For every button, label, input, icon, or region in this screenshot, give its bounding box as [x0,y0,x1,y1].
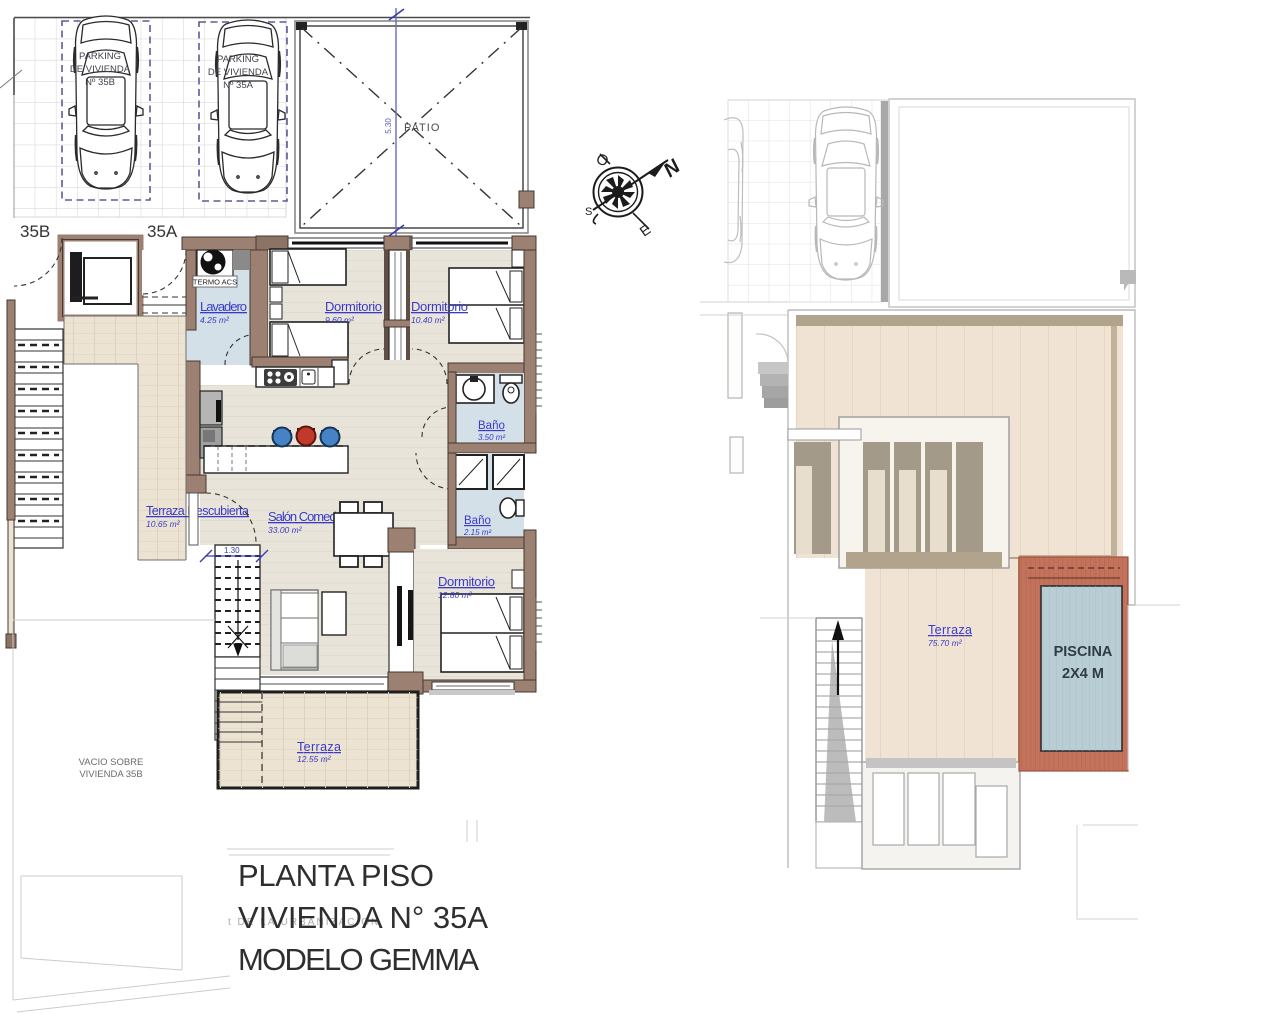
svg-text:Terraza: Terraza [928,623,972,637]
svg-text:DE VIVIENDA: DE VIVIENDA [70,64,131,75]
svg-text:Dormitorio: Dormitorio [438,574,495,589]
svg-text:S: S [585,206,592,218]
svg-text:PATIO: PATIO [404,122,440,134]
svg-text:TERMO ACS: TERMO ACS [193,278,237,287]
svg-text:35B: 35B [20,222,50,241]
svg-text:2.15 m²: 2.15 m² [463,528,491,537]
svg-text:10.40 m²: 10.40 m² [411,315,446,325]
svg-text:35A: 35A [147,222,178,241]
svg-text:PARKING: PARKING [79,51,121,62]
svg-text:DE VIVIENDA: DE VIVIENDA [208,67,269,78]
svg-text:10.65 m²: 10.65 m² [146,519,181,529]
svg-text:75.70 m²: 75.70 m² [928,638,963,648]
svg-text:2X4 M: 2X4 M [1062,666,1104,682]
svg-text:MODELO GEMMA: MODELO GEMMA [238,942,479,977]
svg-text:Baño: Baño [478,420,505,432]
svg-text:Lavadero: Lavadero [200,299,247,314]
svg-text:33.00 m²: 33.00 m² [268,525,303,535]
svg-text:PLANTA PISO: PLANTA PISO [238,858,434,893]
svg-text:12.55 m²: 12.55 m² [297,754,332,764]
svg-text:PISCINA: PISCINA [1054,644,1113,660]
svg-text:Dormitorio: Dormitorio [325,299,382,314]
svg-text:Baño: Baño [464,515,491,527]
svg-text:9.60 m²: 9.60 m² [325,315,355,325]
svg-text:12.80 m²: 12.80 m² [438,590,473,600]
svg-text:VACIO SOBRE: VACIO SOBRE [79,757,144,768]
svg-text:VIVIENDA 35B: VIVIENDA 35B [79,769,142,780]
svg-text:Dormitorio: Dormitorio [411,299,468,314]
svg-text:PARKING: PARKING [217,54,259,65]
svg-text:Nº 35B: Nº 35B [85,77,115,88]
svg-text:1.30: 1.30 [224,546,240,555]
svg-text:Terraza: Terraza [297,740,341,754]
svg-text:VIVIENDA N° 35A: VIVIENDA N° 35A [238,900,488,935]
svg-text:3.50 m²: 3.50 m² [478,433,505,442]
svg-text:5.30: 5.30 [384,118,393,134]
svg-text:Nº 35A: Nº 35A [223,80,254,91]
svg-text:4.25 m²: 4.25 m² [200,315,230,325]
